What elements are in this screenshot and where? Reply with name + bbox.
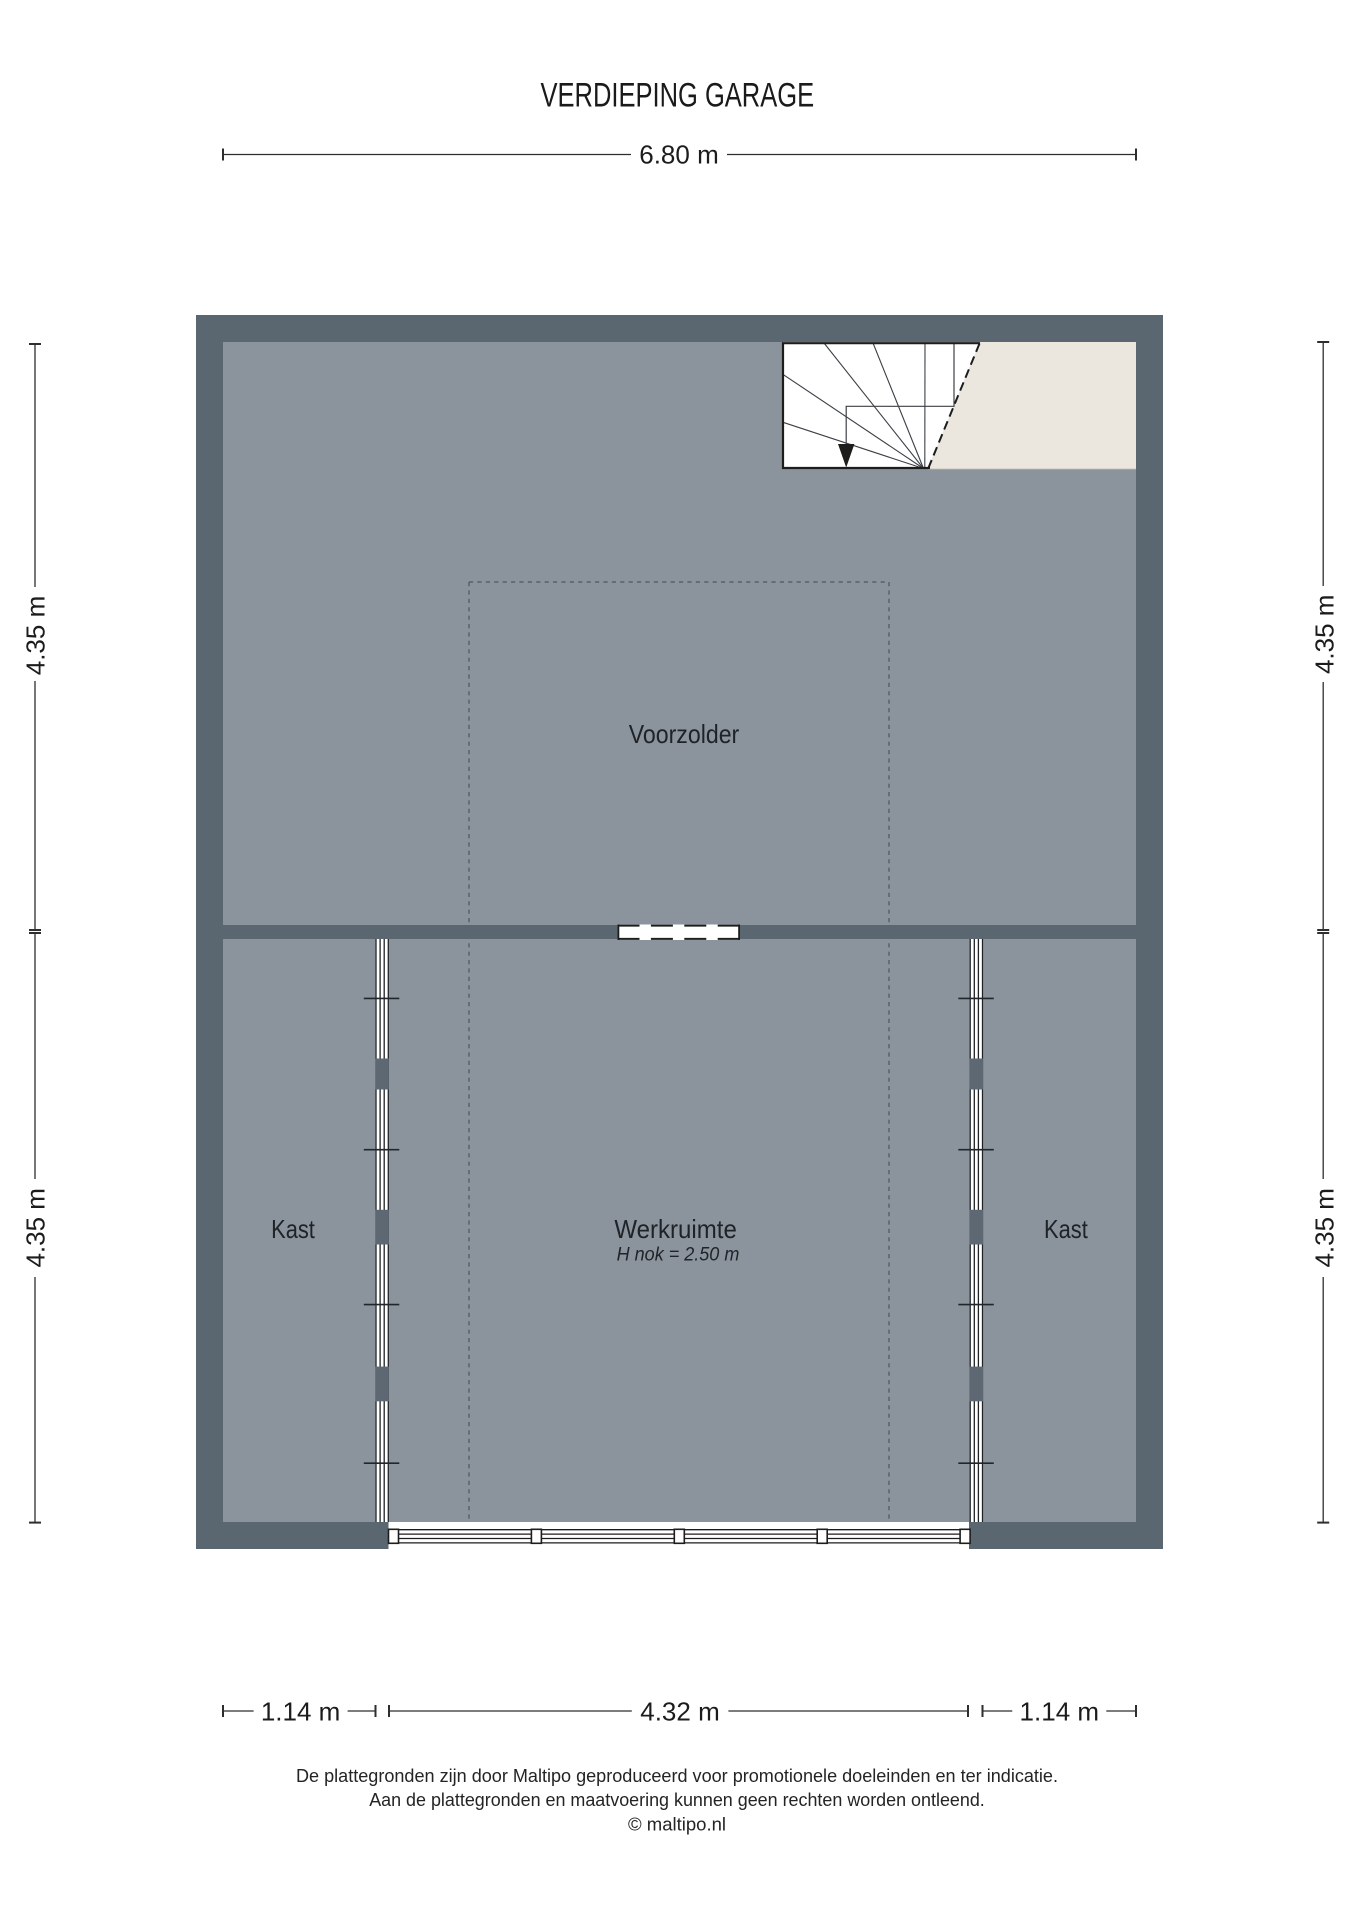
- svg-text:© maltipo.nl: © maltipo.nl: [628, 1815, 726, 1835]
- svg-text:4.35 m: 4.35 m: [1310, 595, 1340, 675]
- svg-text:Kast: Kast: [271, 1214, 315, 1244]
- svg-text:1.14 m: 1.14 m: [261, 1697, 341, 1727]
- svg-text:6.80 m: 6.80 m: [639, 140, 719, 170]
- svg-text:Aan de plattegronden en maatvo: Aan de plattegronden en maatvoering kunn…: [369, 1790, 985, 1810]
- svg-text:4.35 m: 4.35 m: [1310, 1188, 1340, 1268]
- svg-text:4.35 m: 4.35 m: [21, 596, 51, 676]
- svg-text:4.35 m: 4.35 m: [21, 1188, 51, 1268]
- svg-text:De plattegronden zijn door Mal: De plattegronden zijn door Maltipo gepro…: [296, 1766, 1058, 1786]
- svg-text:Werkruimte: Werkruimte: [614, 1214, 737, 1244]
- svg-text:Voorzolder: Voorzolder: [629, 719, 740, 749]
- svg-text:H nok = 2.50 m: H nok = 2.50 m: [617, 1244, 740, 1265]
- svg-text:VERDIEPING GARAGE: VERDIEPING GARAGE: [541, 76, 815, 114]
- svg-text:Kast: Kast: [1044, 1214, 1088, 1244]
- svg-text:1.14 m: 1.14 m: [1020, 1697, 1100, 1727]
- svg-text:4.32 m: 4.32 m: [640, 1697, 720, 1727]
